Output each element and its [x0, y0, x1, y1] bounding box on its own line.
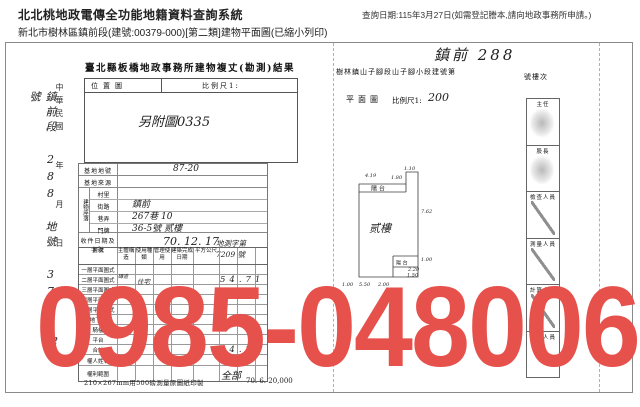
stamp-label: 測量人員 [530, 242, 556, 248]
dim-top1: 4.19 [364, 173, 377, 179]
header-floor: 層次 [79, 248, 117, 264]
stamp-label: 主任 [536, 102, 549, 108]
stamp-cell-inspector: 檢查人員 [527, 192, 559, 239]
document-subtitle: 新北市樹林區鎮前段(建號:00379-000)[第二類]建物平面圖(已縮小列印) [18, 24, 327, 39]
plan-scale-value: 200 [428, 91, 449, 104]
street-row: 街路 鎮前 [90, 199, 267, 211]
stamp-label: 檢查人員 [530, 195, 556, 201]
phone-number-watermark: 0985-048006 [36, 270, 639, 384]
building-address-rows: 村里 街路 鎮前 巷弄 267巷 10 門牌 36-5號 贰樓 [90, 188, 267, 232]
lane-label: 巷弄 [90, 212, 118, 223]
dim-top3: 1.10 [404, 166, 416, 172]
location-scale-label: 比例尺1: [162, 79, 240, 92]
lane-value: 267巷 10 [118, 212, 267, 223]
lane-row: 巷弄 267巷 10 [90, 211, 267, 223]
floor-label: 贰樓 [369, 222, 393, 235]
plan-scale-label: 比例尺1: [392, 95, 422, 106]
left-form-title: 臺北縣板橋地政事務所建物複丈(勘測)結果 [76, 60, 304, 74]
street-label: 街路 [90, 200, 118, 211]
site-number-label: 基地地號 [79, 164, 118, 175]
site-number-value-cell: 87-20 [118, 164, 267, 175]
site-source-value-cell [118, 176, 267, 187]
query-date: 查詢日期:115年3月27日(如需登記謄本,請向地政事務所申請。) [362, 9, 591, 21]
village-row: 村里 [90, 188, 267, 199]
site-number-value: 87-20 [173, 164, 199, 174]
stamp-label: 股長 [536, 149, 549, 155]
page: 北北桃地政電傳全功能地籍資料查詢系統 新北市樹林區鎮前段(建號:00379-00… [0, 0, 640, 407]
right-form-handwritten-title: 鎮前 288 [434, 44, 515, 65]
location-map-header: 位置圖 比例尺1: [85, 79, 297, 93]
location-map-label: 位置圖 [85, 79, 162, 92]
balcony-top-label: 陽 台 [371, 185, 385, 193]
stamp-cell-chief: 主任 [527, 99, 559, 146]
system-title: 北北桃地政電傳全功能地籍資料查詢系統 [18, 6, 243, 23]
header-square-meters: 平方公尺 [193, 248, 219, 264]
plan-label: 平面圖 [346, 94, 382, 105]
dim-notch1: 1.00 [421, 257, 433, 263]
header-use-type: 使用種類 [135, 248, 153, 264]
village-value [118, 188, 267, 199]
left-form-fields: 基地地號 87-20 基地來源 建物座落 村里 街路 鎮 [78, 163, 268, 251]
building-address-block: 建物座落 村里 街路 鎮前 巷弄 267巷 10 門牌 [79, 188, 267, 233]
table-header-row: 層次 主體構造 使用種類 管理使用 建築完成日期 平方公尺 [79, 248, 267, 265]
right-form-header: 樹林鎮山子腳段山子腳小段建號第 [336, 67, 456, 77]
header-construction: 主體構造 [117, 248, 135, 264]
street-value: 鎮前 [118, 200, 267, 211]
attached-figure-note: 另附圖0335 [138, 111, 210, 130]
village-label: 村里 [90, 188, 118, 199]
building-address-label: 建物座落 [79, 188, 90, 232]
dim-top2: 1.80 [391, 175, 403, 181]
right-form-header-suffix: 號樓次 [524, 72, 548, 82]
site-source-row: 基地來源 [79, 176, 267, 188]
site-source-label: 基地來源 [79, 176, 118, 187]
header-completion-date: 建築完成日期 [171, 248, 193, 264]
header-management: 管理使用 [153, 248, 171, 264]
dim-right: 7.62 [421, 209, 432, 215]
stamp-cell-section-head: 股長 [527, 146, 559, 193]
site-number-row: 基地地號 87-20 [79, 164, 267, 176]
